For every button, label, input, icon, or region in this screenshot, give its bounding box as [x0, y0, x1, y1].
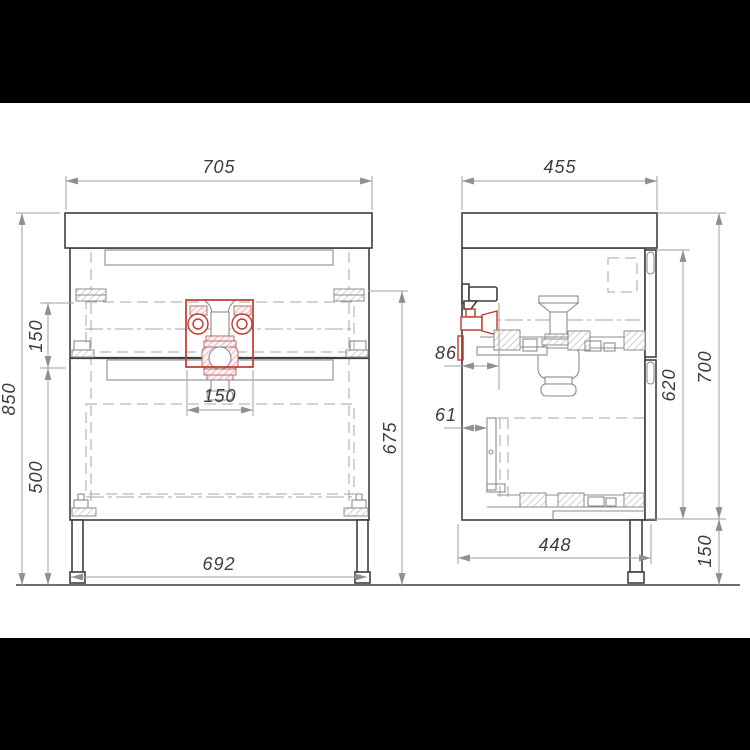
dim-side-runner-offset: 61 — [435, 405, 457, 425]
dim-front-drain-width: 150 — [203, 386, 236, 406]
dim-side-cabinet-height: 700 — [695, 350, 715, 383]
dim-side-base-depth: 448 — [538, 535, 571, 555]
dim-front-leg-span: 692 — [202, 554, 235, 574]
dim-front-lower-section: 500 — [26, 460, 46, 493]
side-leg — [628, 520, 644, 583]
dim-side-leg-height: 150 — [695, 534, 715, 567]
side-countertop — [462, 213, 657, 248]
dim-side-inner-height: 620 — [659, 368, 679, 401]
front-countertop — [65, 213, 372, 248]
technical-drawing-page: 705 850 150 500 675 150 692 — [0, 0, 750, 750]
dim-side-valve-offset: 86 — [435, 343, 457, 363]
dim-side-overall-depth: 455 — [543, 157, 576, 177]
dim-front-drawer-offset: 150 — [26, 319, 46, 352]
vanity-cabinet-drawing: 705 850 150 500 675 150 692 — [0, 0, 750, 750]
dim-front-carcass-height: 675 — [380, 421, 400, 454]
dim-front-overall-height: 850 — [0, 382, 19, 415]
dim-front-overall-width: 705 — [202, 157, 235, 177]
